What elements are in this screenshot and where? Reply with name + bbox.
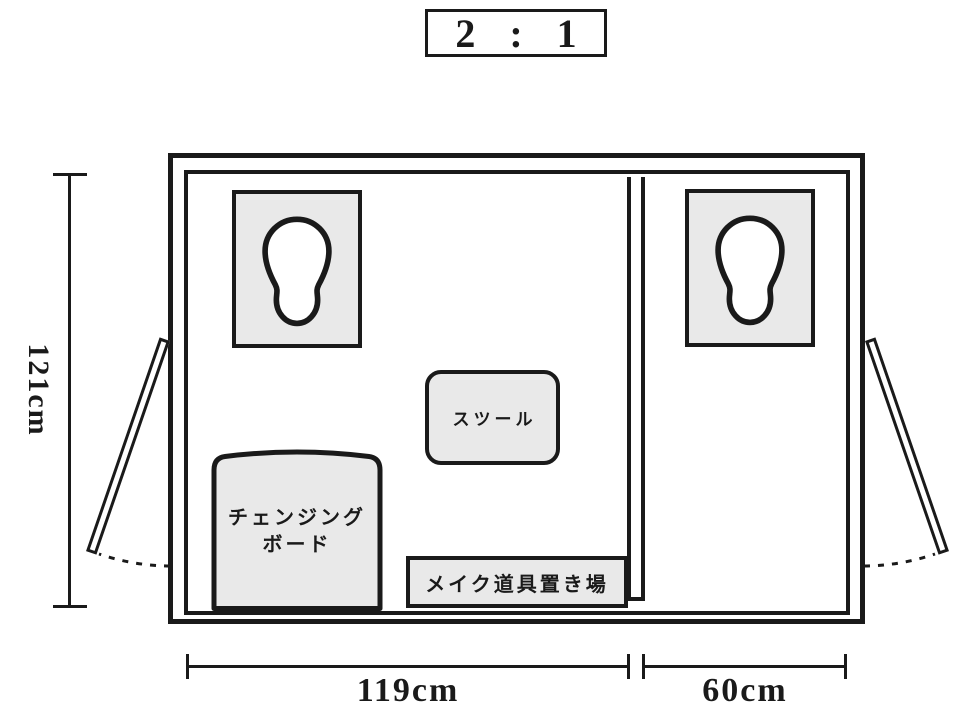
- changing-board-label-line1: チェンジング: [211, 505, 383, 532]
- main-width-dimension-cap-right: [627, 654, 630, 679]
- height-dimension-label: 121cm: [21, 343, 55, 436]
- toilet-seat-icon: [236, 194, 358, 344]
- toilet-seat-icon: [689, 193, 811, 343]
- right-door: [865, 337, 949, 554]
- changing-board-label-line2: ボード: [211, 532, 383, 559]
- divider-wall: [627, 177, 645, 601]
- right-toilet-platform: [685, 189, 815, 347]
- changing-board-label: チェンジング ボード: [211, 505, 383, 559]
- height-dimension-line: [68, 174, 71, 607]
- stool-label: スツール: [449, 405, 537, 430]
- side-width-dimension-cap-right: [844, 654, 847, 679]
- left-toilet-platform: [232, 190, 362, 348]
- main-width-dimension-cap-left: [186, 654, 189, 679]
- side-width-dimension-line: [643, 665, 847, 668]
- makeup-storage-label: メイク道具置き場: [425, 568, 609, 597]
- left-door-swing-arc: [99, 554, 170, 566]
- changing-board: チェンジング ボード: [211, 449, 383, 611]
- main-width-dimension-line: [187, 665, 629, 668]
- makeup-storage-area: メイク道具置き場: [406, 556, 628, 608]
- floor-plan-canvas: 2 : 1 スツール チェンジング ボード メイク道: [0, 0, 977, 709]
- side-width-dimension-label: 60cm: [702, 672, 787, 709]
- height-dimension-cap-top: [53, 173, 87, 176]
- main-width-dimension-label: 119cm: [357, 672, 460, 709]
- height-dimension-cap-bottom: [53, 605, 87, 608]
- left-door: [86, 337, 170, 554]
- right-door-swing-arc: [864, 554, 935, 566]
- scale-ratio-label: 2 : 1: [443, 10, 588, 57]
- scale-ratio-box: 2 : 1: [425, 9, 607, 57]
- side-width-dimension-cap-left: [642, 654, 645, 679]
- stool: スツール: [425, 370, 560, 465]
